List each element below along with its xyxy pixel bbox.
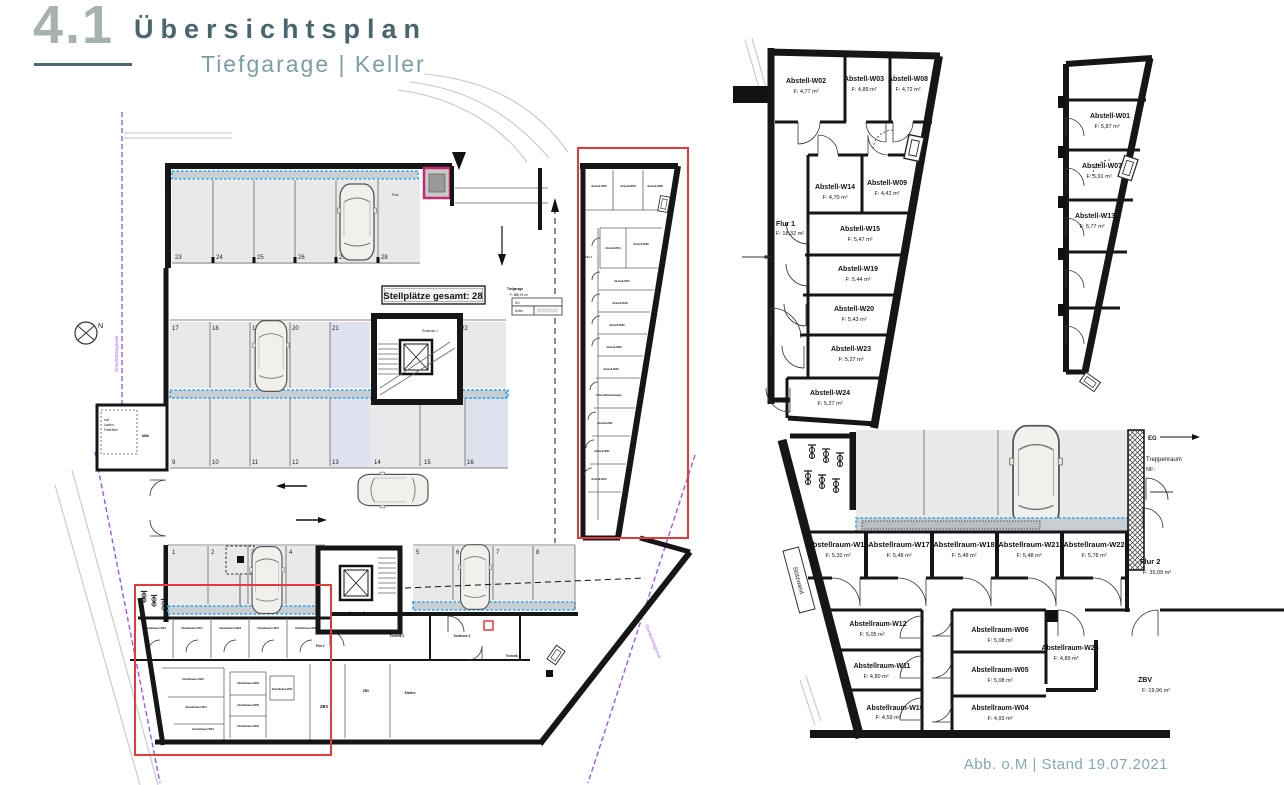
mini-room-label: ZBV xyxy=(363,689,370,693)
room-area: F: 5,08 m² xyxy=(987,678,1012,684)
site-context-line xyxy=(410,82,549,158)
stall-number: 18 xyxy=(212,326,219,332)
direction-arrow-left-head xyxy=(276,483,285,489)
room-area: F: 5,05 m² xyxy=(859,632,884,638)
room-area: F: 5,08 m² xyxy=(987,638,1012,644)
title-underline xyxy=(34,63,132,66)
stall-number: 28 xyxy=(381,255,388,261)
mini-room-label: Abstellraum-W17 xyxy=(181,626,203,630)
storage-strip: Abstell-W02 Abstell-W03 Abstell-W08 Abst… xyxy=(580,166,678,538)
room-area: F: 4,77 m² xyxy=(793,89,818,95)
detail-plan-keller: Stützwand EG Treppenraum NF: xyxy=(782,426,1284,738)
room-label: Müll xyxy=(142,434,149,438)
car-icon xyxy=(253,321,289,392)
mini-room-label: Abstellraum-W06 xyxy=(237,681,259,685)
room-area: F: 4,80 m² xyxy=(863,674,888,680)
room-area: F: 4,89 m² xyxy=(851,87,876,93)
boundary-label: Grundstücksgrenze xyxy=(114,335,119,372)
mini-room-label: Abstellraum-W25 xyxy=(272,688,293,691)
stall-number: 11 xyxy=(252,460,259,466)
parking-area xyxy=(856,430,1128,518)
room-label: Schleuse 3 xyxy=(454,634,471,638)
room-area: F: 5,32 m² xyxy=(825,553,850,559)
bike-rack-icon xyxy=(836,453,844,467)
door-symbol xyxy=(1080,372,1101,391)
room-area: F: 4,70 m² xyxy=(822,195,847,201)
room-label: Treppenraum xyxy=(1146,457,1182,463)
room-label: Abstell-W19 xyxy=(838,266,878,273)
room-area: F: 5,48 m² xyxy=(886,553,911,559)
mini-room-label: ZBV xyxy=(320,704,329,709)
stall-number: 13 xyxy=(332,460,339,466)
mini-room-label: Abstellraum-W11 xyxy=(185,705,207,709)
room-label: Abstellraum-W04 xyxy=(971,705,1028,712)
stall-number: 25 xyxy=(257,255,264,261)
stair-core-1: Schleuse 1 xyxy=(374,316,460,402)
stellplaetze-box: Stellplätze gesamt: 28 xyxy=(382,286,485,304)
room-label: Abstellraum-W06 xyxy=(971,627,1028,634)
stall-number: 10 xyxy=(212,460,219,466)
car-icon xyxy=(1010,426,1063,529)
mini-room-label: Abstell-W19 xyxy=(612,301,628,305)
page-subtitle: Tiefgarage | Keller xyxy=(201,51,426,78)
room-label: Abstell-W08 xyxy=(888,76,928,83)
room-area: F: 35,09 m² xyxy=(1143,570,1171,576)
parking-stall-lav xyxy=(330,398,370,468)
stall-number: 24 xyxy=(216,255,223,261)
room-label: Abstellraum-W22 xyxy=(1063,540,1124,549)
room-label: Abstell-W13 xyxy=(1075,213,1115,220)
zone-label: Fahrräder xyxy=(104,428,119,432)
site-context-line xyxy=(398,90,527,162)
drainage-channel xyxy=(862,521,1040,529)
door-symbol xyxy=(547,645,565,665)
room-area: F: 18,32 m² xyxy=(776,231,804,237)
drainage-strip xyxy=(413,602,575,610)
site-context-line xyxy=(424,74,568,152)
room-label: Schleuse 1 xyxy=(422,329,438,333)
room-label: Technik 3 xyxy=(506,654,521,658)
room-label: Abstell-W03 xyxy=(844,76,884,83)
room-area: F: 5,44 m² xyxy=(845,277,870,283)
room-label: Abstell-W02 xyxy=(786,78,826,85)
room-area: F: 5,47 m² xyxy=(847,237,872,243)
room-area: F: 5,48 m² xyxy=(1016,553,1041,559)
stall-number: 14 xyxy=(374,460,381,466)
room-area: F: 5,27 m² xyxy=(838,357,863,363)
room-label: Abstellraum-W21 xyxy=(998,540,1059,549)
red-marker xyxy=(484,621,493,630)
drainage-strip xyxy=(168,606,325,614)
boundary-label: Grundstücksgrenze xyxy=(644,624,662,660)
bike-rack-icon xyxy=(832,479,840,493)
room-area: F: 5,43 m² xyxy=(841,317,866,323)
stall-number: 15 xyxy=(424,460,431,466)
drainage-strip xyxy=(172,171,418,179)
zone-label: evtl. xyxy=(104,418,110,422)
mini-room-label: Flur 2 xyxy=(316,644,325,648)
detail-plan-storage-w01: Abstell-W01 F: 5,87 m² Abstell-W07 F: 5,… xyxy=(1058,58,1152,392)
marking-square xyxy=(237,556,244,563)
bike-rack-icon xyxy=(804,471,812,485)
room-area: F: 4,42 m² xyxy=(874,191,899,197)
outer-wall xyxy=(640,538,690,552)
bike-rack-icon xyxy=(808,445,816,459)
parking-row-bottom-left xyxy=(168,546,325,606)
stall-number: 23 xyxy=(175,255,182,261)
zone-label: Lasten- xyxy=(104,423,115,427)
room-area: NF: xyxy=(1146,467,1155,473)
room-label: Flur 2 xyxy=(1140,557,1160,566)
room-area: F: 19,96 m² xyxy=(1142,688,1170,694)
room-label: Abstellraum-W05 xyxy=(971,667,1028,674)
room-label: Abstell-W23 xyxy=(831,346,871,353)
room-label: Abstellraum-W11 xyxy=(854,663,911,670)
mini-room-label: Abstellraum-W05 xyxy=(237,703,259,707)
drainage-strip xyxy=(458,390,506,398)
stall-number: 17 xyxy=(172,326,179,332)
wall-stub xyxy=(733,86,771,103)
parking-stall-lav xyxy=(465,398,508,468)
room-label: Abstellraum-W12 xyxy=(849,621,906,628)
mini-room-label: Abstell-W14 xyxy=(605,246,621,250)
mini-room-label: Abstell-W23 xyxy=(606,345,622,349)
area-table-cell: KG xyxy=(515,301,520,305)
room-label: Abstell-W20 xyxy=(834,306,874,313)
room-label: Abstell-W14 xyxy=(815,184,855,191)
room-area: F: 5,77 m² xyxy=(1079,224,1104,230)
mini-room-label: Abstell-W07 xyxy=(594,449,610,453)
room-label: ZBV xyxy=(1138,677,1152,684)
room-label: Abstell-W24 xyxy=(810,390,850,397)
car-icon xyxy=(250,547,284,614)
direction-arrow-right-head xyxy=(318,517,327,523)
main-plan: Grundstücksgrenze Grundstücksgrenze N 23 xyxy=(55,74,695,785)
bike-rack-icon xyxy=(822,449,830,463)
room-label: Abstellraum-W10 xyxy=(866,705,923,712)
room-label: Flur 1 xyxy=(776,221,795,228)
mini-room-label: Abstell-W13 xyxy=(591,477,607,481)
door-symbol xyxy=(658,196,670,213)
room-area: F: 5,48 m² xyxy=(951,553,976,559)
room-label: Abstell-W15 xyxy=(840,226,880,233)
room-label: Abstellraum-W25 xyxy=(1041,645,1098,652)
stall-number: 20 xyxy=(292,326,299,332)
stall-number: 21 xyxy=(332,326,339,332)
mini-room-label: Abstellraum-W22 xyxy=(295,626,317,630)
mini-room-label: Abstell-W20 xyxy=(609,323,625,327)
bike-rack-icon xyxy=(818,475,826,489)
bike-rack-icon xyxy=(151,595,157,606)
room-label: Abstell-W07 xyxy=(1082,163,1122,170)
mini-room-label: Abstell-W08 xyxy=(647,184,663,188)
mini-room-label: Abstell-W09 xyxy=(633,242,649,246)
eg-arrow-head xyxy=(1192,434,1200,440)
mini-room-label: Elektro xyxy=(405,691,416,695)
parking-row-top xyxy=(172,180,420,264)
room-label: Technik 2 xyxy=(390,634,405,638)
mini-room-label: Abstell-W15 xyxy=(614,279,630,283)
page-title: Übersichtsplan xyxy=(134,14,427,45)
room-area: F: 5,91 m² xyxy=(1086,174,1111,180)
mini-room-label: Abstell-W24 xyxy=(603,367,619,371)
parking-row-bottom-right xyxy=(413,546,575,602)
page: 4.1 Übersichtsplan Tiefgarage | Keller xyxy=(0,0,1284,785)
area-table: Tiefgarage F: 886,91 m² KG Keller xyxy=(507,287,562,315)
room-area: F: 4,59 m² xyxy=(875,715,900,721)
car-icon xyxy=(358,472,428,508)
mini-room-label: Abstellraum-W10 xyxy=(192,727,214,731)
room-area: F: 5,27 m² xyxy=(817,401,842,407)
floor-plan-canvas: Grundstücksgrenze Grundstücksgrenze N 23 xyxy=(0,0,1284,785)
area-table-area: F: 886,91 m² xyxy=(510,293,528,297)
lane-arrow-down-head xyxy=(498,254,506,266)
elevator-icon xyxy=(340,566,372,600)
north-label: N xyxy=(98,323,103,330)
area-table-title: Tiefgarage xyxy=(507,287,523,291)
stall-number: 26 xyxy=(298,255,305,261)
section-number: 4.1 xyxy=(33,0,114,56)
property-boundary-line xyxy=(588,455,695,783)
lane-arrow-up-head xyxy=(551,198,559,212)
storage-room xyxy=(97,405,167,470)
car-icon xyxy=(458,545,491,610)
room-area: F: 4,93 m² xyxy=(987,716,1012,722)
hatched-wall xyxy=(1128,430,1144,570)
mini-room-label: Abstellraum-W12 xyxy=(182,677,204,681)
mini-room-label: Abstellraum-W21 xyxy=(257,626,279,630)
level-label: EG xyxy=(1148,436,1157,442)
room-area: F: 5,87 m² xyxy=(1094,124,1119,130)
total-stalls-label: Stellplätze gesamt: 28 xyxy=(383,291,482,302)
mini-room-label: Flur 1 xyxy=(585,255,593,259)
room-label: Abstellraum-W18 xyxy=(933,540,994,549)
room-area: F: 4,72 m² xyxy=(895,87,920,93)
room-label: Abstell-W01 xyxy=(1090,113,1130,120)
room-area: F: 4,89 m² xyxy=(1053,656,1078,662)
wall-stub xyxy=(1046,610,1058,622)
shaft-inner xyxy=(429,174,445,192)
site-context-line xyxy=(124,133,232,138)
mini-room-label: Abstell-W03 xyxy=(620,184,636,188)
mini-room-label: Abstell-W02 xyxy=(591,184,607,188)
room-label: Abstellraum-W16 xyxy=(807,540,868,549)
detail-plan-storage-flur1: Abstell-W02 F: 4,77 m² Abstell-W03 F: 4,… xyxy=(733,38,940,428)
mini-room-label: Abstellraum-W18 xyxy=(219,626,241,630)
post-label: Post xyxy=(392,193,398,197)
column-marker xyxy=(546,670,553,677)
room-label: Abstell-W09 xyxy=(867,180,907,187)
mini-room-label: Abstell-W01 xyxy=(597,421,613,425)
stall-number: 12 xyxy=(292,460,299,466)
mini-room-label: Abstellraum-W04 xyxy=(237,724,259,728)
mini-room-label: Fahrrad/Kinderwagen xyxy=(596,394,622,397)
ramp-arrow-icon xyxy=(452,152,466,170)
room-label: Abstellraum-W17 xyxy=(868,540,929,549)
north-symbol: N xyxy=(75,322,103,344)
stall-number: 16 xyxy=(467,460,474,466)
area-table-cell: Keller xyxy=(515,309,524,313)
car-icon xyxy=(338,184,377,260)
room-area: F: 5,78 m² xyxy=(1081,553,1106,559)
footer-credit: Abb. o.M | Stand 19.07.2021 xyxy=(964,756,1168,773)
